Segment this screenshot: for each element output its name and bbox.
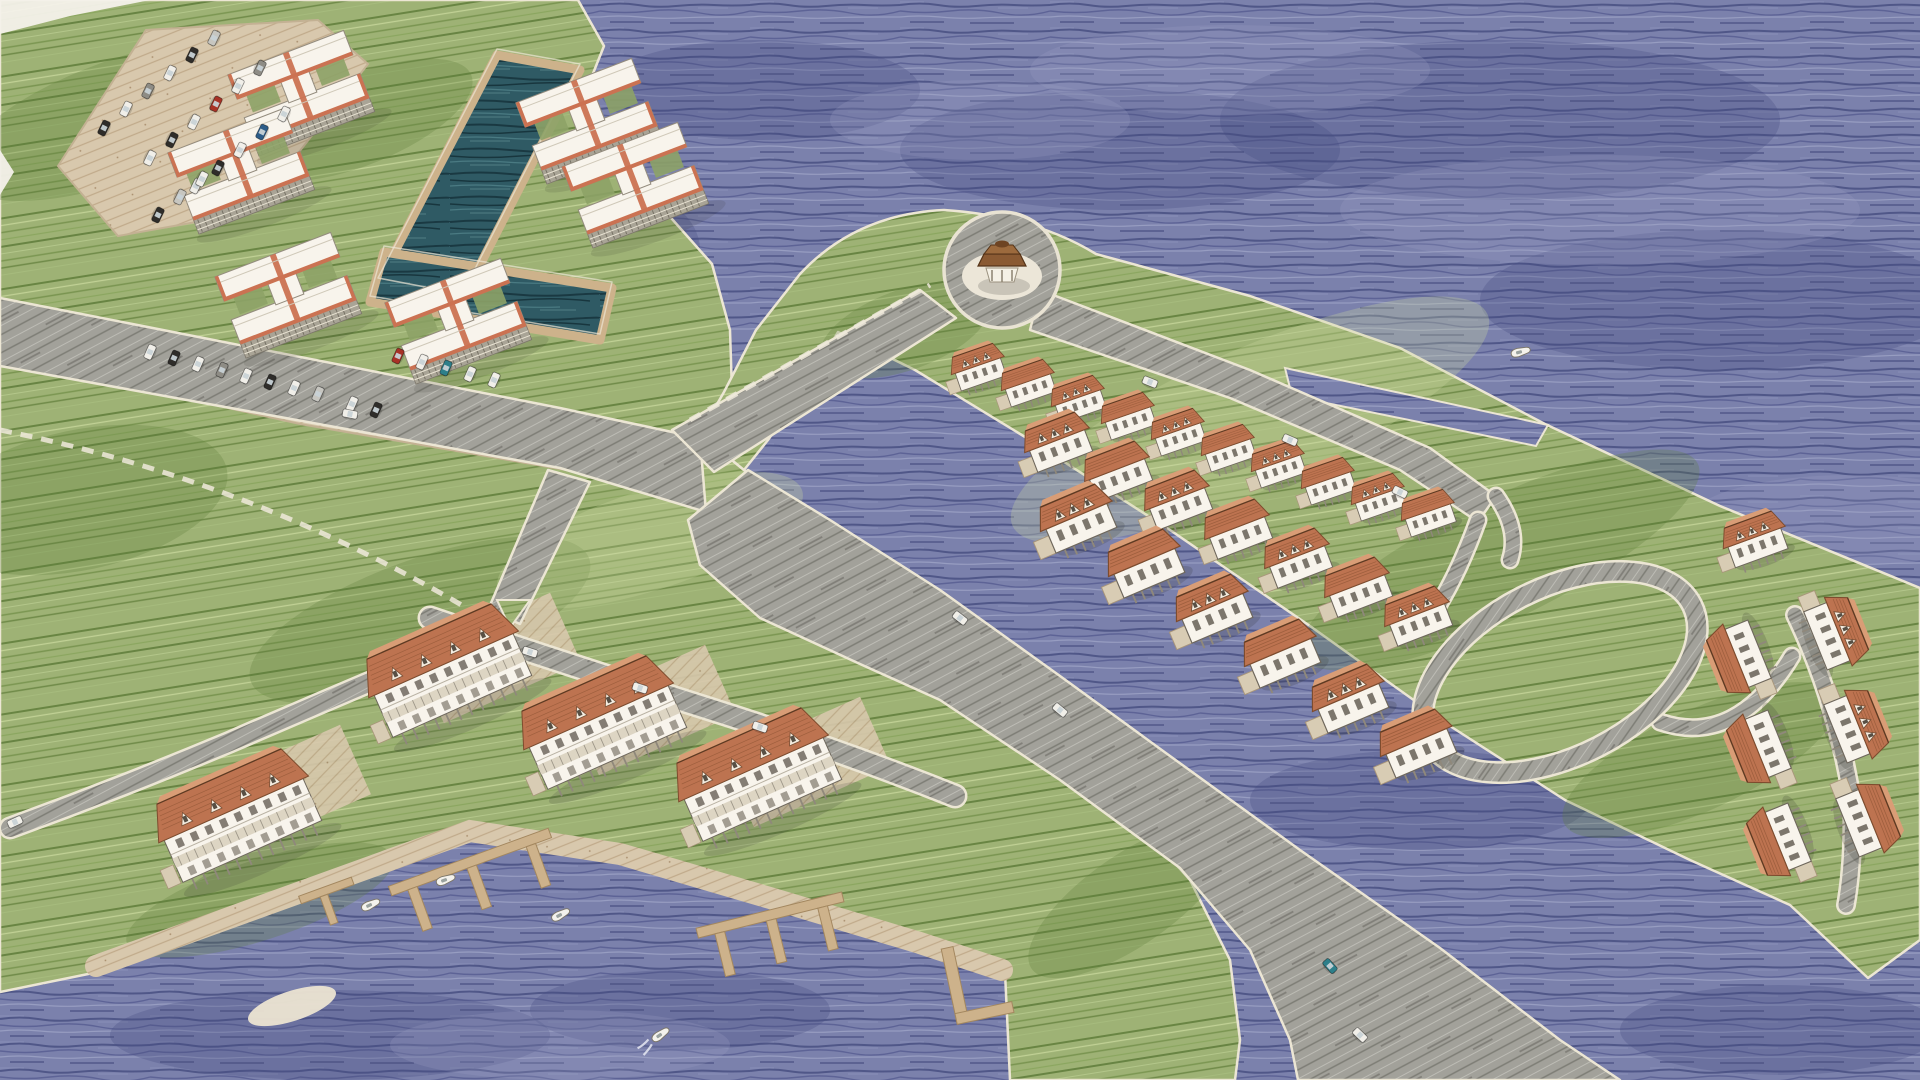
gazebo-roof-cap: [995, 241, 1009, 248]
car-glass: [347, 411, 353, 417]
light-water-patch: [1340, 155, 1860, 265]
gazebo-roof-lower: [978, 254, 1026, 266]
light-water-patch: [390, 1010, 730, 1080]
site-plan-rendering: [0, 0, 1920, 1080]
waterfront-development-site-plan: [0, 0, 1920, 1080]
gazebo-plaza: [944, 212, 1060, 328]
light-water-patch: [830, 80, 1130, 160]
